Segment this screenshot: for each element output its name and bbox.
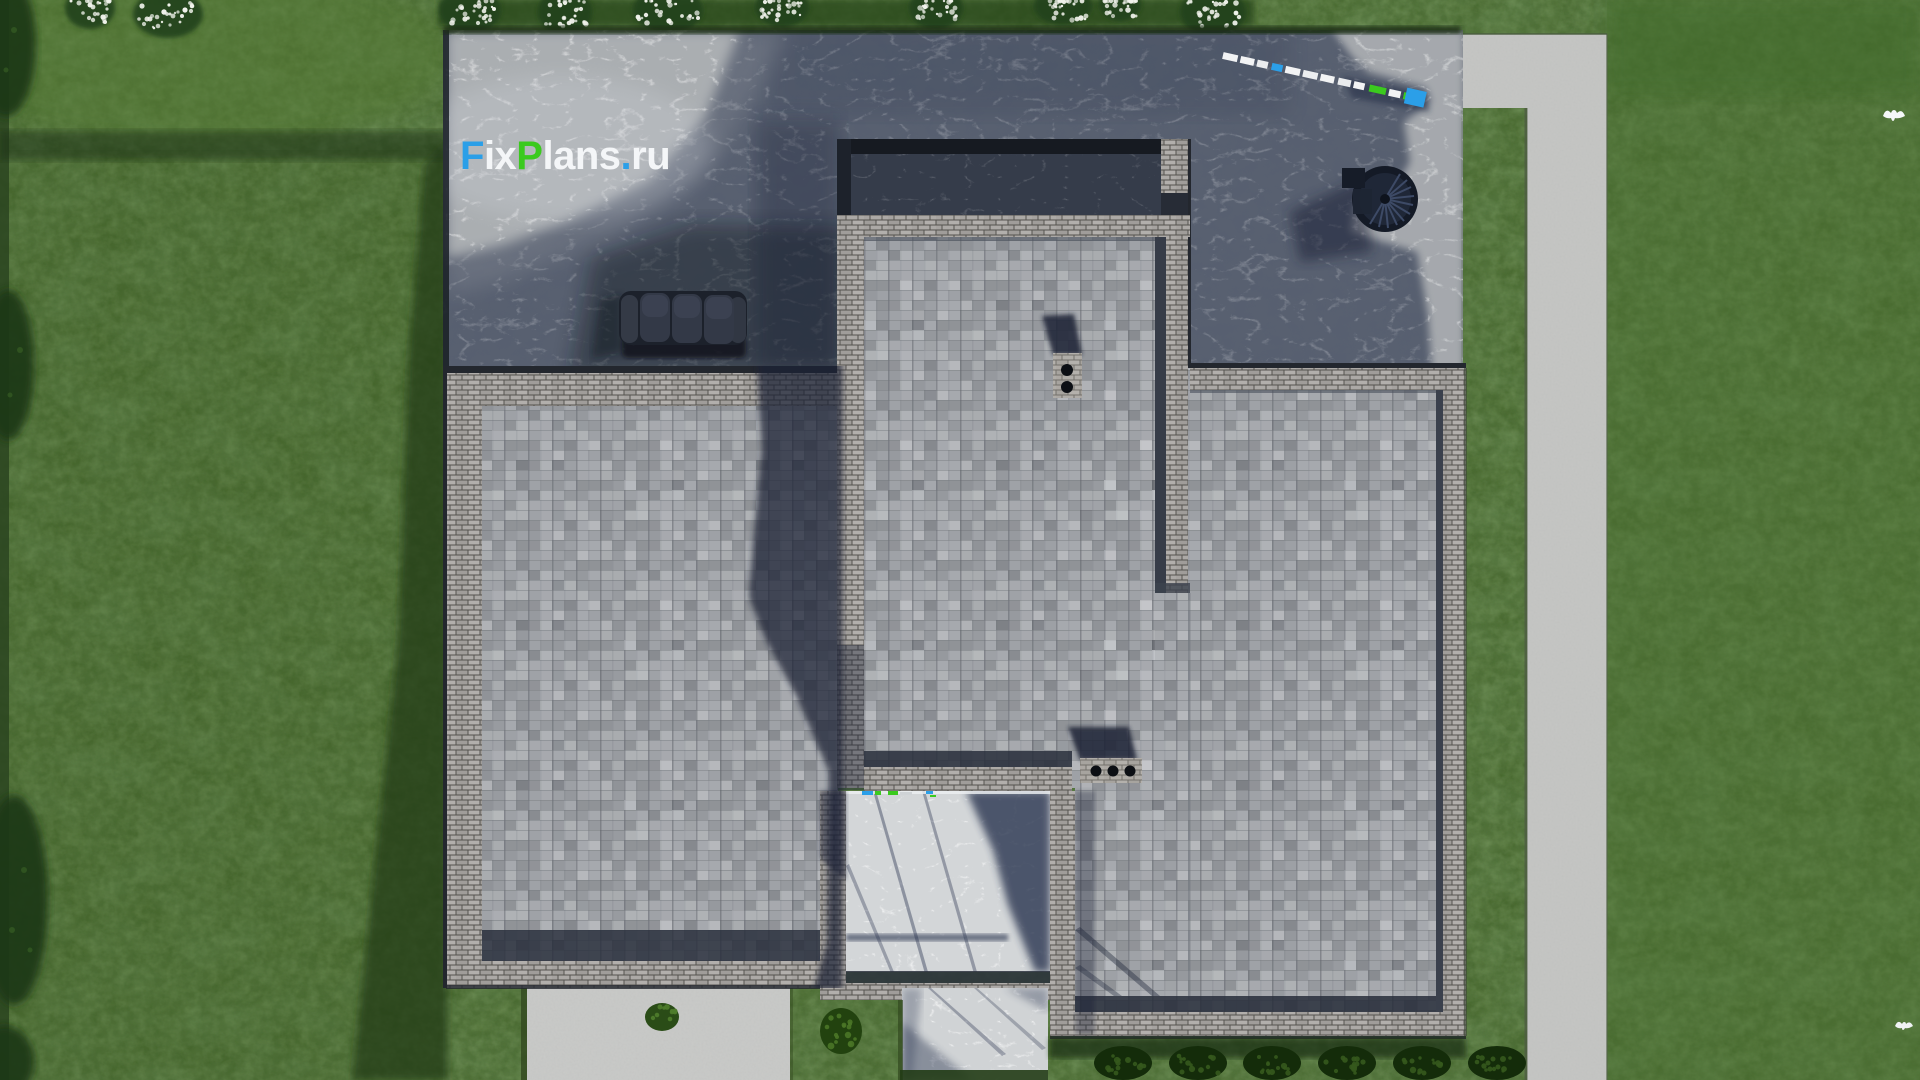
svg-text:FixPlans.ru: FixPlans.ru <box>460 134 670 178</box>
